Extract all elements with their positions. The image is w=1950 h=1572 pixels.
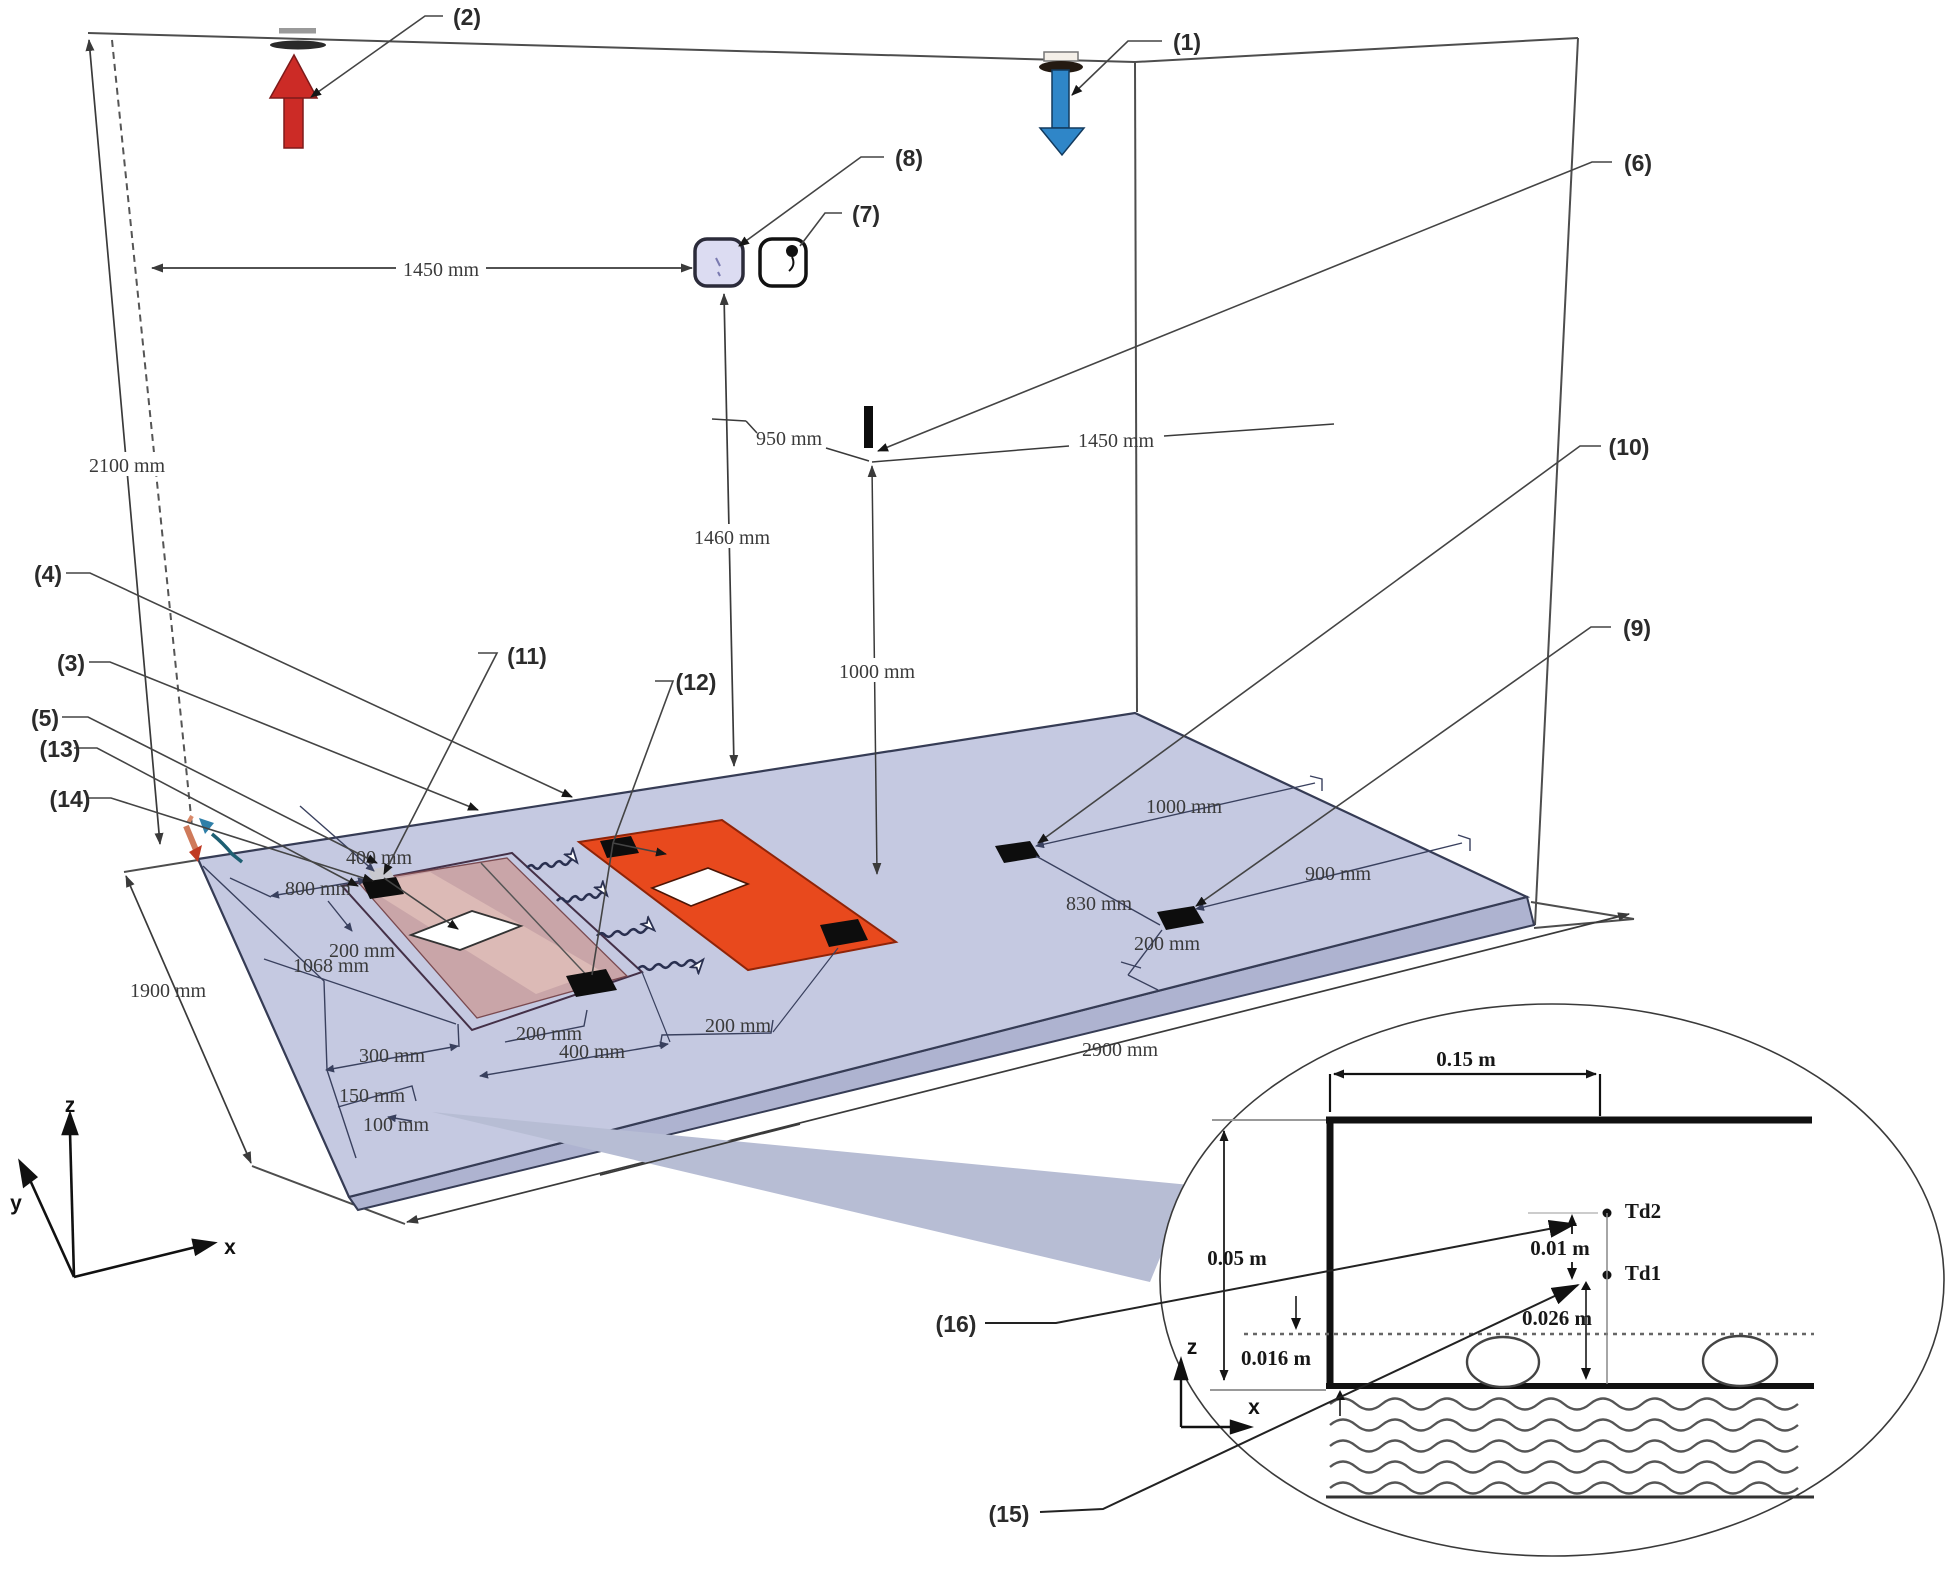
svg-text:1460 mm: 1460 mm [694, 527, 771, 549]
svg-text:1900 mm: 1900 mm [130, 980, 207, 1002]
svg-text:800 mm: 800 mm [285, 878, 352, 900]
svg-text:150 mm: 150 mm [339, 1085, 406, 1107]
svg-text:(2): (2) [453, 4, 481, 30]
svg-text:1450 mm: 1450 mm [1078, 430, 1155, 452]
svg-text:100 mm: 100 mm [363, 1114, 430, 1136]
svg-text:830 mm: 830 mm [1066, 893, 1133, 915]
svg-text:z: z [65, 1094, 76, 1117]
svg-text:200 mm: 200 mm [1134, 933, 1201, 955]
svg-text:(11): (11) [507, 643, 547, 669]
svg-text:(5): (5) [31, 705, 59, 731]
svg-text:0.01 m: 0.01 m [1530, 1236, 1590, 1260]
svg-text:(3): (3) [57, 650, 85, 676]
svg-text:(14): (14) [50, 786, 91, 812]
svg-text:x: x [224, 1236, 236, 1259]
svg-text:0.05 m: 0.05 m [1207, 1246, 1267, 1270]
svg-text:2100 mm: 2100 mm [89, 455, 166, 477]
svg-text:0.15 m: 0.15 m [1436, 1047, 1496, 1071]
svg-text:(15): (15) [989, 1501, 1030, 1527]
svg-text:2900 mm: 2900 mm [1082, 1039, 1159, 1061]
svg-text:200 mm: 200 mm [516, 1023, 583, 1045]
svg-text:400 mm: 400 mm [346, 847, 413, 869]
svg-text:(13): (13) [40, 736, 81, 762]
svg-text:1000 mm: 1000 mm [839, 661, 916, 683]
svg-text:(10): (10) [1609, 434, 1650, 460]
svg-text:Td2: Td2 [1625, 1199, 1661, 1223]
svg-text:1450 mm: 1450 mm [403, 259, 480, 281]
svg-text:1000 mm: 1000 mm [1146, 796, 1223, 818]
svg-text:0.016 m: 0.016 m [1241, 1346, 1312, 1370]
svg-text:(4): (4) [34, 561, 62, 587]
svg-text:x: x [1248, 1396, 1260, 1419]
svg-text:z: z [1187, 1336, 1198, 1359]
svg-text:Td1: Td1 [1625, 1261, 1661, 1285]
svg-text:(16): (16) [936, 1311, 977, 1337]
svg-text:900 mm: 900 mm [1305, 863, 1372, 885]
svg-text:y: y [10, 1192, 22, 1215]
svg-text:300 mm: 300 mm [359, 1045, 426, 1067]
svg-text:(1): (1) [1173, 29, 1201, 55]
svg-text:0.026 m: 0.026 m [1522, 1306, 1593, 1330]
svg-text:950 mm: 950 mm [756, 428, 823, 450]
svg-text:(7): (7) [852, 201, 880, 227]
svg-text:(8): (8) [895, 145, 923, 171]
svg-text:1068 mm: 1068 mm [293, 955, 370, 977]
svg-text:200 mm: 200 mm [705, 1015, 772, 1037]
svg-text:(9): (9) [1623, 615, 1651, 641]
svg-text:(6): (6) [1624, 150, 1652, 176]
svg-text:(12): (12) [676, 669, 717, 695]
